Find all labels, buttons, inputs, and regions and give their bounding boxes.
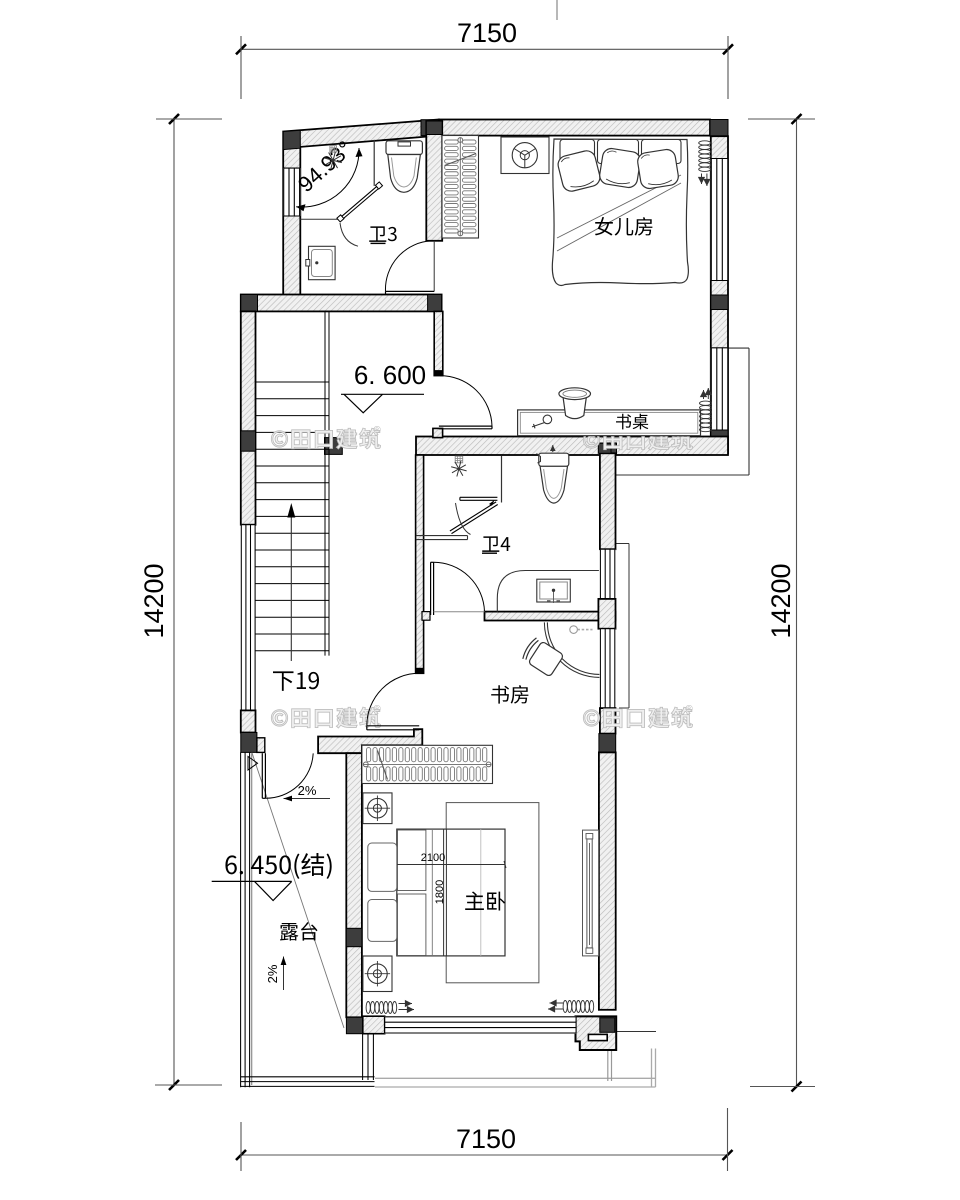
svg-text:14200: 14200 (766, 563, 796, 638)
svg-text:2%: 2% (298, 783, 317, 798)
svg-text:6. 600: 6. 600 (354, 360, 426, 390)
svg-text:7150: 7150 (456, 1124, 516, 1154)
svg-text:®: ® (373, 704, 381, 715)
svg-text:2%: 2% (265, 964, 280, 983)
svg-text:®: ® (685, 704, 693, 715)
svg-text:1800: 1800 (434, 880, 446, 904)
svg-text:14200: 14200 (139, 563, 169, 638)
svg-text:®: ® (373, 425, 381, 436)
svg-text:2100: 2100 (421, 852, 445, 864)
svg-text:7150: 7150 (457, 18, 517, 48)
